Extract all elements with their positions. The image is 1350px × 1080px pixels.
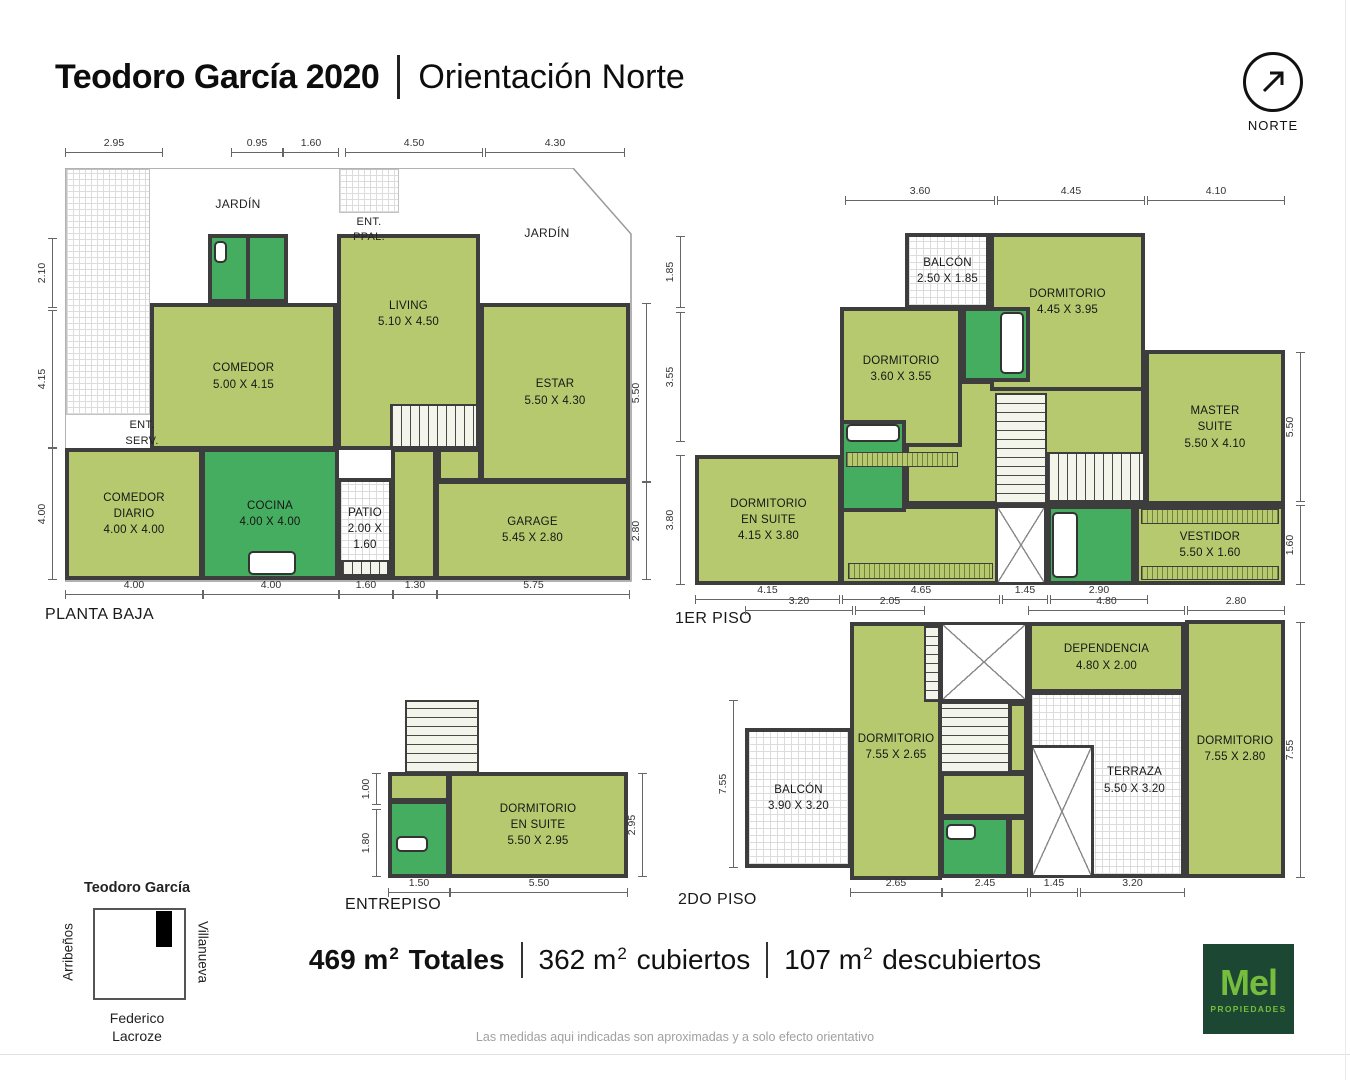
dim-7.55: 7.55 (1300, 622, 1301, 878)
map-block (93, 908, 186, 1000)
superscript: 2 (389, 944, 398, 963)
dim-0.95: 0.95 (231, 152, 283, 153)
room-dependencia-label: DEPENDENCIA4.80 X 2.00 (1032, 626, 1181, 689)
shaft-1p (995, 505, 1047, 585)
superscript: 2 (863, 944, 872, 963)
bottom-rule (0, 1054, 1350, 1055)
dim-label: 1.45 (1044, 877, 1064, 889)
room-dormitorio-755-280: DORMITORIO7.55 X 2.80 (1185, 620, 1285, 878)
plan-title-1er-piso: 1ER PISO (675, 610, 752, 628)
dim-4.50: 4.50 (345, 152, 483, 153)
dim-label: 4.30 (545, 137, 565, 149)
dim-4.15: 4.15 (52, 310, 53, 448)
hall-2p (940, 772, 1028, 818)
room-comedor-diario-label: COMEDORDIARIO4.00 X 4.00 (69, 452, 199, 576)
dim-1.60: 1.60 (339, 594, 393, 595)
xarea-2p (940, 622, 1028, 702)
dim-1.45: 1.45 (1002, 599, 1048, 600)
map-street-left: Arribeños (61, 923, 76, 981)
patio-step-hatch (341, 560, 389, 576)
right-rule (1345, 0, 1346, 1080)
dim-label: 2.95 (626, 815, 638, 835)
dim-label: 3.60 (910, 185, 930, 197)
hall-pb (391, 448, 437, 580)
dim-label: 2.05 (880, 595, 900, 607)
dim-label: 1.85 (664, 262, 676, 282)
dim-2.95: 2.95 (65, 152, 163, 153)
dim-2.45: 2.45 (942, 892, 1028, 893)
dim-3.55: 3.55 (680, 312, 681, 442)
dim-label: 4.00 (36, 504, 48, 524)
totals-item-totales: 469 m2 Totales (309, 944, 505, 976)
dim-2.05: 2.05 (855, 610, 925, 611)
room-dormitorio-en-suite-ep-label: DORMITORIOEN SUITE5.50 X 2.95 (452, 776, 624, 874)
dim-4.00: 4.00 (52, 448, 53, 580)
room-dormitorio-en-suite-ep: DORMITORIOEN SUITE5.50 X 2.95 (448, 772, 628, 878)
dim-5.50: 5.50 (450, 892, 628, 893)
dim-2.80: 2.80 (1187, 610, 1285, 611)
dim-label: 5.50 (630, 382, 642, 402)
plan-title-planta-baja: PLANTA BAJA (45, 606, 154, 624)
stairs-ep (405, 700, 479, 774)
dim-2.65: 2.65 (850, 892, 942, 893)
stripe-1p-left (846, 452, 958, 467)
map-lot-marker (156, 911, 172, 947)
dim-label: 4.10 (1206, 185, 1226, 197)
agency-logo-subtitle: PROPIEDADES (1210, 1004, 1286, 1014)
dim-4.00: 4.00 (203, 594, 339, 595)
dim-label: 4.50 (404, 137, 424, 149)
room-master-suite: MASTERSUITE5.50 X 4.10 (1145, 350, 1285, 505)
dim-5.50: 5.50 (646, 303, 647, 482)
stairs-pb (390, 404, 478, 448)
dim-4.10: 4.10 (1147, 200, 1285, 201)
room-wet-b (246, 234, 288, 303)
dim-3.20: 3.20 (1080, 892, 1185, 893)
dim-label: 7.55 (717, 774, 729, 794)
dim-label: 7.55 (1284, 740, 1296, 760)
totals-separator (766, 942, 768, 978)
dim-label: 2.80 (630, 521, 642, 541)
filler2-2p (1008, 816, 1028, 878)
ent-serv-line2: SERV. (125, 435, 158, 447)
room-balcon-2p-label: BALCÓN3.90 X 3.20 (749, 732, 848, 864)
dim-2.10: 2.10 (52, 238, 53, 308)
jardin-hatch-left (66, 169, 150, 415)
dim-1.85: 1.85 (680, 236, 681, 308)
dim-label: 3.20 (789, 595, 809, 607)
fixture-wet (214, 241, 227, 263)
map-street-right: Villanueva (196, 921, 211, 983)
fixture-tub-mid (846, 424, 900, 442)
dim-label: 4.45 (1061, 185, 1081, 197)
stairs-1p-a (995, 393, 1047, 505)
dim-3.80: 3.80 (680, 455, 681, 585)
agency-logo-name: Mel (1220, 965, 1277, 1001)
dim-4.15: 4.15 (695, 599, 840, 600)
ent-ppal-hatch (339, 169, 399, 213)
dim-4.65: 4.65 (842, 599, 1000, 600)
fixture-tub-top (1000, 312, 1024, 374)
dim-label: 5.50 (529, 877, 549, 889)
room-estar: ESTAR5.50 X 4.30 (480, 303, 630, 482)
room-balcon-2p: BALCÓN3.90 X 3.20 (745, 728, 852, 868)
dim-label: 2.10 (36, 263, 48, 283)
dim-label: 1.60 (1284, 535, 1296, 555)
dim-label: 0.95 (247, 137, 267, 149)
dim-4.00: 4.00 (65, 594, 203, 595)
dim-label: 1.30 (405, 579, 425, 591)
dim-label: 1.45 (1015, 584, 1035, 596)
ent-ppal-line1: ENT. (356, 216, 381, 228)
ent-ppal-line2: PPAL. (353, 231, 385, 243)
ent-serv-line1: ENT. (129, 419, 154, 431)
dim-label: 5.50 (1284, 417, 1296, 437)
dim-label: 4.65 (911, 584, 931, 596)
stairs-2p (940, 702, 1010, 774)
dim-label: 3.20 (1122, 877, 1142, 889)
dim-1.00: 1.00 (376, 773, 377, 805)
floor-plan-flyer: Teodoro García 2020 Orientación Norte NO… (0, 0, 1350, 1080)
dim-label: 1.60 (356, 579, 376, 591)
dim-label: 5.75 (523, 579, 543, 591)
dim-2.95: 2.95 (642, 773, 643, 877)
dim-label: 3.80 (664, 510, 676, 530)
plan-title-2do-piso: 2DO PISO (678, 891, 757, 909)
room-comedor-diario: COMEDORDIARIO4.00 X 4.00 (65, 448, 203, 580)
fixture-stove (248, 551, 296, 575)
dim-label: 1.50 (409, 877, 429, 889)
dim-1.30: 1.30 (393, 594, 437, 595)
dim-1.45: 1.45 (1030, 892, 1078, 893)
agency-logo: Mel PROPIEDADES (1203, 944, 1294, 1034)
dim-3.60: 3.60 (845, 200, 995, 201)
closet-stripe-bottom (1141, 566, 1279, 580)
dim-1.50: 1.50 (388, 892, 450, 893)
closet-stripe-top (1141, 509, 1279, 524)
room-balcon-1p: BALCÓN2.50 X 1.85 (905, 233, 990, 309)
dim-label: 2.65 (886, 877, 906, 889)
dim-4.80: 4.80 (1028, 610, 1185, 611)
dim-7.55: 7.55 (733, 700, 734, 868)
room-dormitorio-en-suite-1p-label: DORMITORIOEN SUITE4.15 X 3.80 (699, 459, 838, 581)
room-estar-label: ESTAR5.50 X 4.30 (484, 307, 626, 478)
superscript: 2 (617, 944, 626, 963)
room-comedor: COMEDOR5.00 X 4.15 (150, 303, 337, 450)
room-comedor-label: COMEDOR5.00 X 4.15 (154, 307, 333, 446)
room-garage-label: GARAGE5.45 X 2.80 (439, 484, 626, 576)
dim-label: 4.00 (124, 579, 144, 591)
room-garage: GARAGE5.45 X 2.80 (435, 480, 630, 580)
room-dormitorio-360-label: DORMITORIO3.60 X 3.55 (844, 303, 958, 435)
dim-1.60: 1.60 (1300, 505, 1301, 585)
dim-label: 1.60 (301, 137, 321, 149)
fixture-2p (946, 824, 976, 840)
room-dormitorio-755-280-label: DORMITORIO7.55 X 2.80 (1189, 624, 1281, 874)
dim-label: 1.80 (360, 833, 372, 853)
dim-5.50: 5.50 (1300, 352, 1301, 502)
dim-label: 3.55 (664, 367, 676, 387)
jardin-label-right: JARDÍN (524, 226, 569, 240)
dim-3.20: 3.20 (745, 610, 853, 611)
room-dependencia: DEPENDENCIA4.80 X 2.00 (1028, 622, 1185, 693)
dim-label: 2.95 (104, 137, 124, 149)
dim-label: 4.80 (1096, 595, 1116, 607)
dim-1.60: 1.60 (283, 152, 339, 153)
dim-2.80: 2.80 (646, 482, 647, 580)
dim-label: 2.80 (1226, 595, 1246, 607)
map-street-top: Teodoro García (84, 880, 190, 896)
room-balcon-1p-label: BALCÓN2.50 X 1.85 (909, 237, 986, 305)
dim-label: 4.15 (36, 369, 48, 389)
dim-label: 2.45 (975, 877, 995, 889)
dim-label: 1.00 (360, 779, 372, 799)
totals-item-descubiertos: 107 m2 descubiertos (784, 944, 1041, 976)
shaft-2p (1030, 745, 1094, 878)
stairs-1p-b (1047, 452, 1145, 502)
totals-item-cubiertos: 362 m2 cubiertos (539, 944, 751, 976)
dim-label: 4.15 (757, 584, 777, 596)
totals-separator (521, 942, 523, 978)
room-master-suite-label: MASTERSUITE5.50 X 4.10 (1149, 354, 1281, 501)
dim-4.45: 4.45 (997, 200, 1145, 201)
dim-4.30: 4.30 (485, 152, 625, 153)
disclaimer-text: Las medidas aqui indicadas son aproximad… (0, 1030, 1350, 1044)
stair-strip-2p (924, 626, 940, 702)
plan-title-entrepiso: ENTREPISO (345, 896, 441, 914)
dim-1.80: 1.80 (376, 809, 377, 877)
filler-2p (1008, 702, 1028, 774)
dim-label: 4.00 (261, 579, 281, 591)
hall-ep (388, 772, 450, 802)
mid-strip-pb (437, 448, 482, 482)
dim-5.75: 5.75 (437, 594, 630, 595)
fixture-ep (396, 836, 428, 852)
jardin-label-left: JARDÍN (215, 197, 260, 211)
stripe-1p-bottomleft (848, 563, 993, 579)
room-dormitorio-en-suite-1p: DORMITORIOEN SUITE4.15 X 3.80 (695, 455, 842, 585)
fixture-tub-bottom (1052, 512, 1078, 578)
